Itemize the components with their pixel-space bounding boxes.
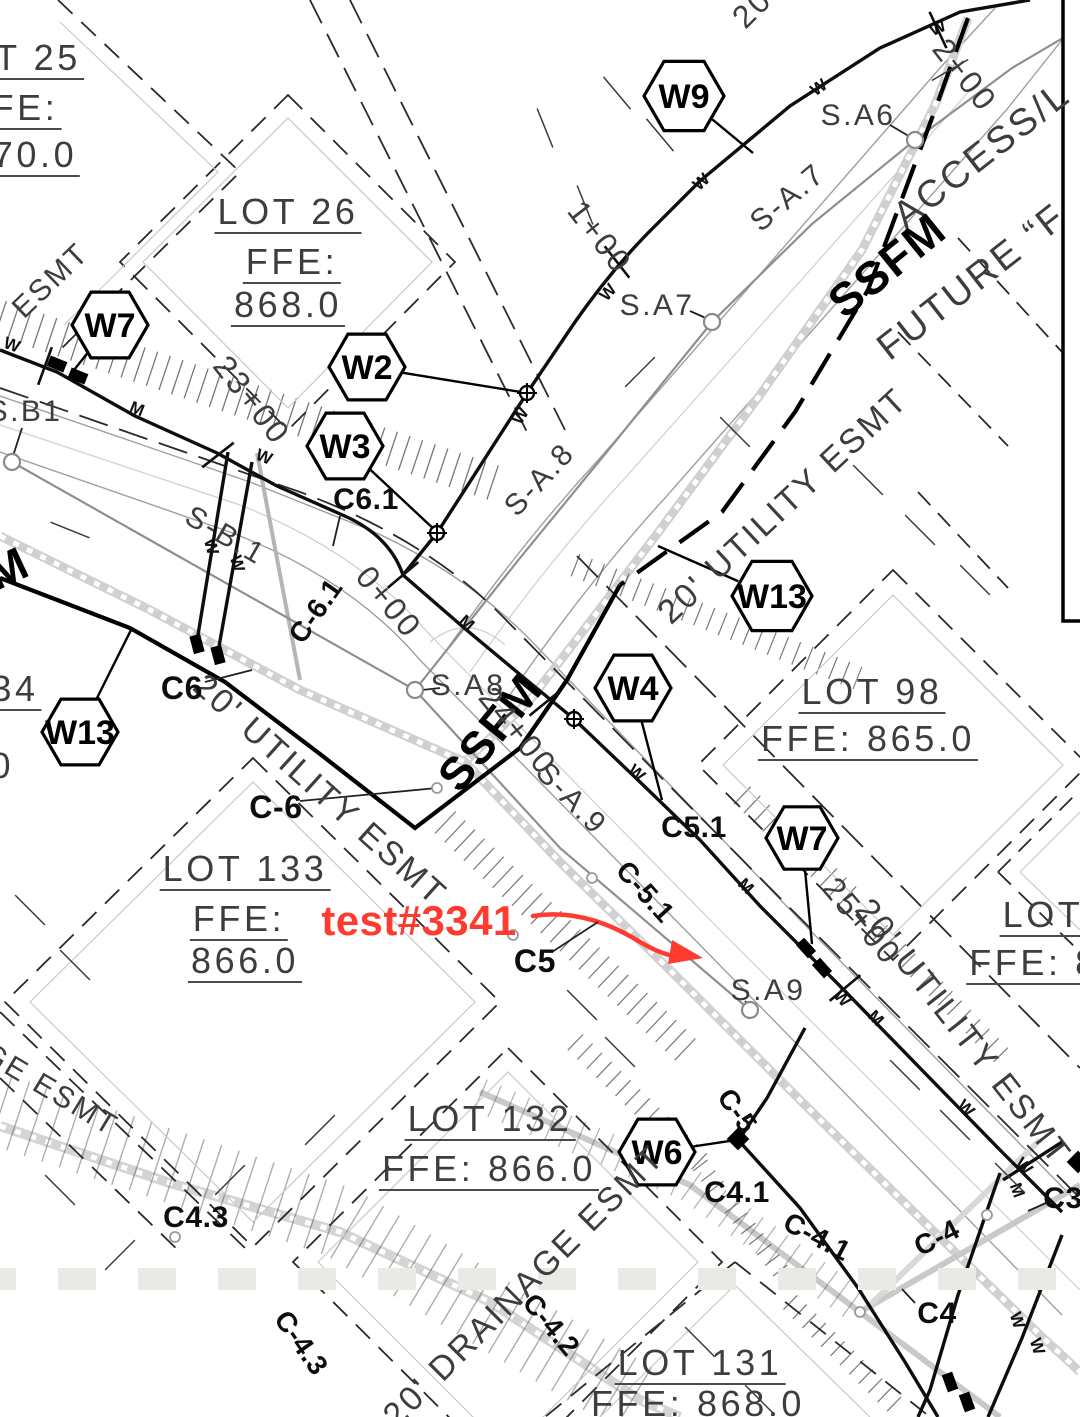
lot-corner-dash	[604, 77, 631, 109]
callout-c5: C5	[514, 945, 556, 977]
lot-corner-dash	[537, 109, 553, 148]
callout-c6-1: C6.1	[333, 485, 399, 515]
lot-corner-dash	[215, 1165, 245, 1195]
pipe-marker-m: M	[127, 397, 147, 420]
callout-c5-1: C5.1	[661, 813, 727, 843]
lot-corner-dash	[960, 565, 990, 595]
landscape-square	[618, 1268, 656, 1290]
pipe-marker-m: M	[864, 1006, 887, 1029]
callout-leader	[552, 922, 598, 952]
landscape-square	[778, 1268, 816, 1290]
lot-corner-dash	[51, 522, 90, 538]
lot132-number: LOT 132	[405, 1101, 576, 1141]
landscape-square	[0, 1268, 16, 1290]
lot-corner-dash	[15, 895, 45, 925]
manhole-sa9: S.A9	[731, 976, 806, 1006]
fragment-34: 34	[0, 671, 42, 711]
lot-corner-dash	[625, 357, 655, 387]
lot-corner-dash	[105, 1240, 135, 1270]
lot131-ffe: FFE: 868.0	[588, 1386, 808, 1417]
sewer-manhole	[407, 682, 423, 698]
callout-leader	[13, 428, 22, 456]
landscape-square	[938, 1268, 976, 1290]
flag-w9-label: W9	[659, 78, 710, 116]
callout-c6: C6	[161, 672, 203, 704]
lot-corner-dash	[905, 515, 935, 545]
flag-w7-right-leader	[805, 871, 812, 944]
lot133-ffe-value: 866.0	[188, 943, 302, 983]
callout-c4-1: C4.1	[704, 1178, 770, 1208]
lot-right-number: LOT	[1000, 897, 1080, 937]
flag-w9-leader	[712, 119, 753, 153]
flag-w4-label: W4	[608, 670, 659, 708]
landscape-square	[298, 1268, 336, 1290]
flag-w7-right-label: W7	[777, 820, 828, 858]
landscape-square	[138, 1268, 176, 1290]
pipe-marker-w: W	[595, 279, 620, 304]
lot132-ffe: FFE: 866.0	[379, 1151, 599, 1191]
sewer-manhole	[704, 314, 720, 330]
flag-w7-left-leader	[74, 352, 88, 370]
valve-symbol	[796, 938, 816, 959]
lot131-number: LOT 131	[615, 1345, 786, 1385]
flag-w2-label: W2	[342, 349, 393, 387]
lot98-ffe: FFE: 865.0	[758, 721, 978, 761]
callout-c4-3: C4.3	[163, 1203, 229, 1233]
manhole-sa6: S.A6	[821, 101, 896, 131]
manhole-sb1: S.B1	[0, 397, 62, 427]
flag-w13-left-leader	[96, 630, 131, 701]
callout-c3: C3	[1043, 1184, 1080, 1214]
lot-corner-dash	[60, 950, 90, 980]
lot26-ffe: FFE:	[243, 244, 341, 284]
pipe-marker-m: M	[734, 874, 757, 897]
flag-w13-right-label: W13	[737, 578, 807, 616]
lot98-number: LOT 98	[798, 674, 945, 714]
lot133-number: LOT 133	[160, 851, 331, 891]
cleanout	[432, 783, 442, 793]
pipe-marker-w: W	[953, 1096, 978, 1121]
lot25-ffe: FE:	[0, 90, 61, 130]
callout-leader	[333, 516, 340, 546]
pipe-fitting-cross	[517, 383, 537, 403]
pipe-marker-w: W	[624, 760, 649, 785]
lot-corner-dash	[305, 1115, 335, 1145]
landscape-square	[58, 1268, 96, 1290]
manhole-sa7: S.A7	[620, 291, 695, 321]
flag-w13-left-label: W13	[45, 714, 115, 752]
landscape-square	[858, 1268, 896, 1290]
callout-c-6: C-6	[249, 791, 302, 823]
valve-symbol	[68, 368, 89, 385]
cleanout	[855, 1307, 865, 1317]
test-annotation: test#3341	[321, 900, 516, 942]
valve-symbol	[942, 1372, 958, 1393]
cleanout	[982, 1210, 992, 1220]
hatch-strips	[0, 318, 1008, 1408]
landscape-square	[218, 1268, 256, 1290]
callout-c4: C4	[917, 1299, 957, 1329]
landscape-square	[698, 1268, 736, 1290]
lot26-ffe-value: 868.0	[231, 287, 345, 327]
lot25-number: T 25	[0, 40, 84, 80]
lot26-number: LOT 26	[214, 194, 361, 234]
landscape-square	[458, 1268, 496, 1290]
landscape-square	[1018, 1268, 1056, 1290]
pipe-marker-w: W	[508, 403, 533, 428]
sewer-manhole	[907, 132, 923, 148]
callout-leader	[902, 1289, 915, 1303]
pipe-marker-m: M	[1006, 1180, 1029, 1200]
flag-w7-left-label: W7	[85, 307, 136, 345]
flag-w3-label: W3	[320, 428, 371, 466]
lot-corner-dash	[853, 465, 883, 495]
landscape-square	[378, 1268, 416, 1290]
lot-corner-dash	[45, 1175, 75, 1205]
pipe-marker-w: W	[807, 75, 832, 100]
flag-w2-leader	[402, 373, 527, 393]
pipe-marker-w: W	[1026, 1336, 1049, 1358]
lot-right-ffe: FFE: 8	[966, 945, 1080, 985]
lot25-ffe-value: 70.0	[0, 137, 80, 177]
sewer-manhole	[4, 454, 20, 470]
lot-corner-dash	[567, 990, 597, 1020]
lot133-ffe: FFE:	[190, 901, 288, 941]
cleanout	[587, 873, 597, 883]
fragment-0: 0	[0, 748, 13, 784]
civil-site-plan: W9W7W2W3W13W4W13W7W6WMWWWWWWWWMWMWMWWMWW…	[0, 0, 1080, 1417]
lot-corner-dash	[605, 1037, 635, 1067]
